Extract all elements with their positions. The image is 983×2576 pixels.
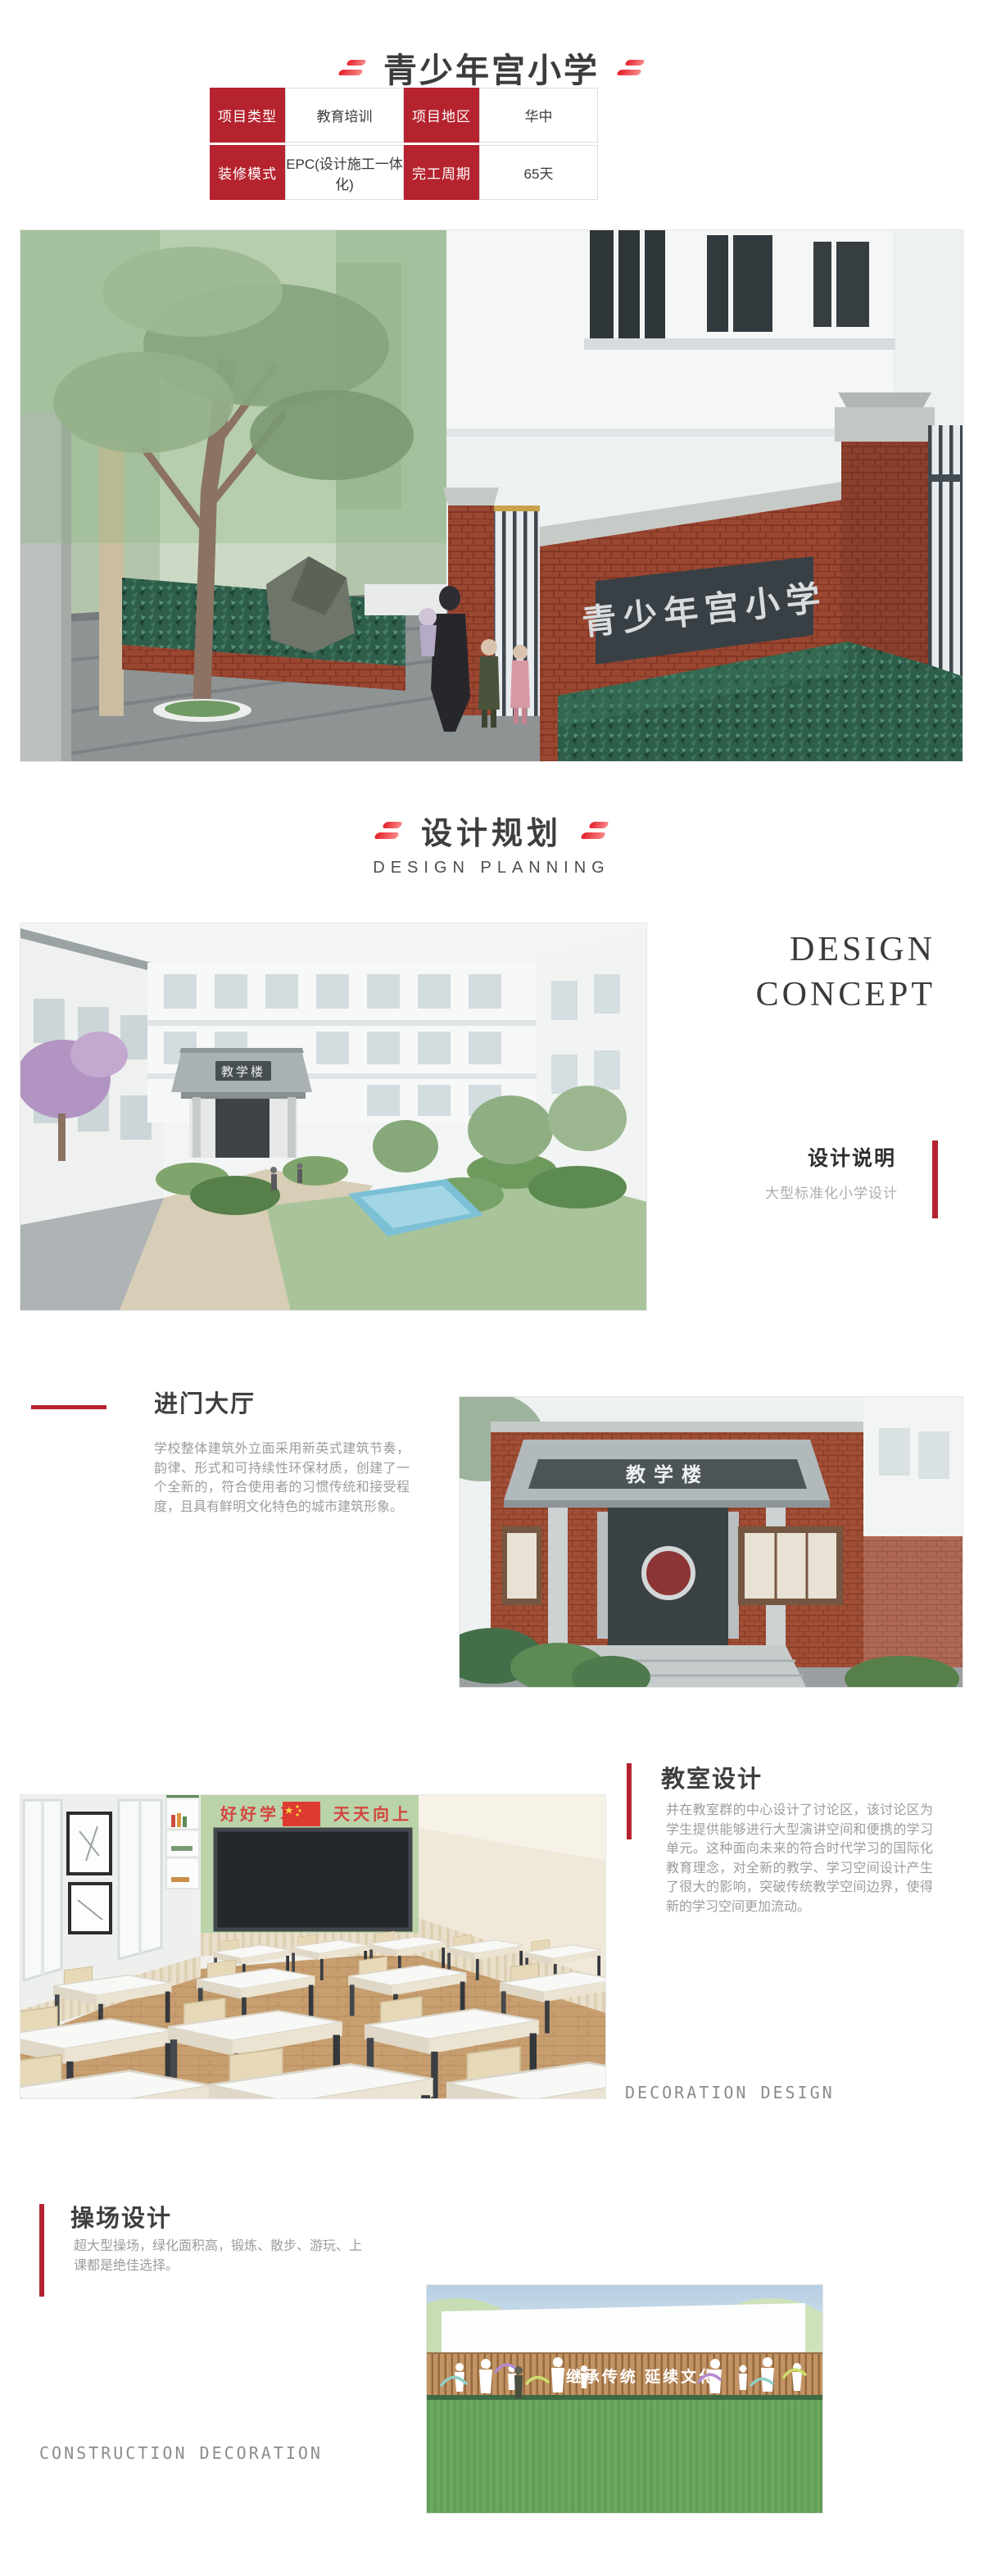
bookshelf <box>166 1795 199 1889</box>
cell-completion-period-label: 完工周期 <box>404 145 479 200</box>
classroom-footer-en: DECORATION DESIGN <box>625 2083 835 2102</box>
playground-title: 操场设计 <box>70 2199 172 2234</box>
page-header: 青少年宫小学 <box>0 43 983 92</box>
picture-frame <box>70 1884 111 1933</box>
section-header-design-planning: 设计规划 DESIGN PLANNING <box>0 808 983 878</box>
hero-gate-render: 青少年宫小学 <box>20 230 963 762</box>
entrance-building-render: 教学楼 <box>460 1397 963 1688</box>
entrance-hall-paragraph: 学校整体建筑外立面采用新英式建筑节奏，韵律、形式和可持续性环保材质，创建了一个全… <box>154 1440 410 1517</box>
cell-project-area-value: 华中 <box>479 88 598 143</box>
project-info-table: 项目类型 教育培训 项目地区 华中 装修模式 EPC(设计施工一体化) 完工周期… <box>210 85 598 202</box>
title-dash-left-icon <box>339 60 365 75</box>
cell-project-type-value: 教育培训 <box>285 88 404 143</box>
section-dash-left-icon <box>375 822 401 839</box>
playground-paragraph: 超大型操场，绿化面积高，锻炼、散步、游玩、上课都是绝佳选择。 <box>74 2237 362 2275</box>
right-wing-building <box>537 930 647 1202</box>
white-building <box>446 230 895 437</box>
title-dash-right-icon <box>618 60 644 75</box>
classroom-paragraph: 并在教室群的中心设计了讨论区，该讨论区为学生提供能够进行大型演讲空间和便携的学习… <box>666 1801 933 1916</box>
playground-footer-en: CONSTRUCTION DECORATION <box>39 2443 323 2463</box>
slogan-right-text: 天天向上 <box>333 1804 412 1824</box>
wall-slogan-text: 继承传统 延续文化 <box>566 2367 717 2386</box>
canopy-sign-text: 教学楼 <box>626 1463 709 1486</box>
entrance-hall-title: 进门大厅 <box>154 1385 256 1419</box>
side-building <box>863 1397 963 1688</box>
canopy-sign-text: 教学楼 <box>221 1065 265 1079</box>
classroom-render: 好好学习 天天向上 <box>20 1795 606 2099</box>
school-building <box>442 2303 805 2356</box>
hero-image: 青少年宫小学 <box>20 229 963 762</box>
table-row: 装修模式 EPC(设计施工一体化) 完工周期 65天 <box>210 145 598 200</box>
concept-image: 教学楼 <box>20 923 647 1311</box>
section-title-cn: 设计规划 <box>421 808 562 853</box>
entrance-canopy: 教学楼 <box>504 1440 830 1508</box>
grass-field <box>427 2400 823 2514</box>
front-wall: 好好学习 天天向上 <box>201 1795 419 1956</box>
section-dash-right-icon <box>582 822 608 839</box>
classroom-accent-bar <box>627 1763 632 1839</box>
playground-accent-bar <box>39 2204 44 2297</box>
cell-completion-period-value: 65天 <box>479 145 598 200</box>
cell-project-type-label: 项目类型 <box>210 88 285 143</box>
round-emblem <box>644 1549 693 1598</box>
playground-render: 继承传统 延续文化 <box>427 2285 823 2514</box>
design-concept-line1: DESIGN <box>756 927 935 973</box>
cell-decoration-mode-label: 装修模式 <box>210 145 285 200</box>
section-title-en: DESIGN PLANNING <box>373 859 609 878</box>
design-note-text: 大型标准化小学设计 <box>765 1181 898 1202</box>
cell-project-area-label: 项目地区 <box>404 88 479 143</box>
playground-image: 继承传统 延续文化 <box>426 2284 823 2514</box>
entrance-canopy: 教学楼 <box>171 1048 312 1158</box>
design-note-accent-bar <box>932 1141 938 1218</box>
entrance-hall-accent-line <box>31 1405 106 1409</box>
person <box>514 2366 523 2398</box>
classroom-image: 好好学习 天天向上 <box>20 1794 606 2099</box>
design-concept-title: DESIGN CONCEPT <box>756 927 935 1018</box>
design-concept-line2: CONCEPT <box>756 973 935 1018</box>
cell-decoration-mode-value: EPC(设计施工一体化) <box>285 145 404 200</box>
concept-courtyard-render: 教学楼 <box>20 923 647 1311</box>
blackboard <box>215 1830 410 1930</box>
project-page: 青少年宫小学 项目类型 教育培训 项目地区 华中 装修模式 EPC(设计施工一体… <box>0 0 983 2576</box>
culture-wall: 继承传统 延续文化 <box>427 2352 823 2397</box>
classroom-title: 教室设计 <box>661 1760 763 1794</box>
table-row: 项目类型 教育培训 项目地区 华中 <box>210 88 598 143</box>
entrance-image: 教学楼 <box>459 1396 963 1688</box>
china-flag-icon <box>283 1802 320 1826</box>
page-title: 青少年宫小学 <box>383 43 600 92</box>
design-note-title: 设计说明 <box>808 1142 896 1172</box>
